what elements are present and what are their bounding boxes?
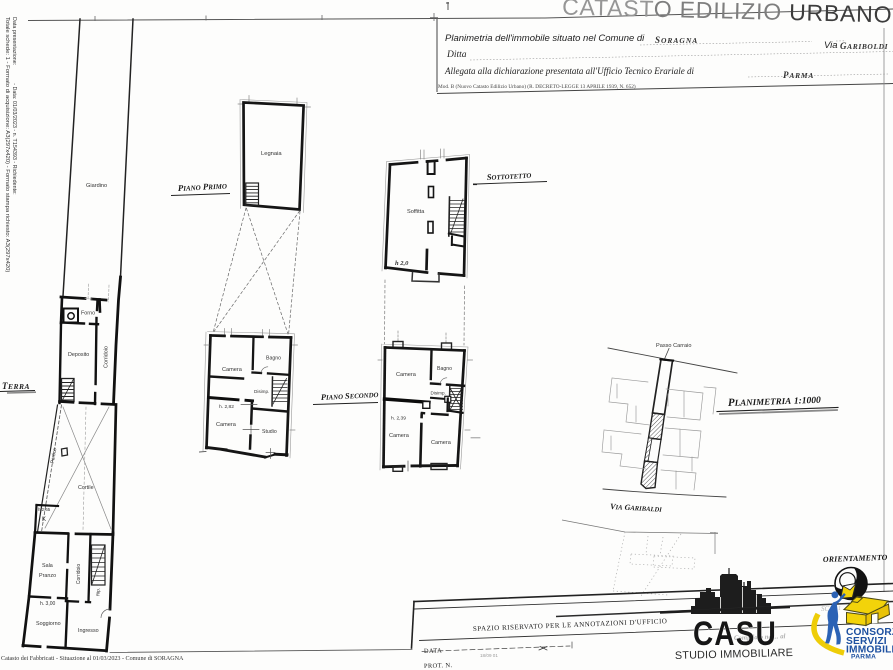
- svg-text:h. 3,00: h. 3,00: [40, 601, 56, 607]
- svg-text:Pranzo: Pranzo: [39, 573, 56, 579]
- svg-text:Mod. B (Nuovo Catasto Edilizio: Mod. B (Nuovo Catasto Edilizio Urbano) (…: [438, 83, 636, 90]
- svg-text:1: 1: [838, 606, 841, 612]
- svg-text:h 2,0: h 2,0: [395, 260, 409, 267]
- svg-text:Deposito: Deposito: [68, 352, 89, 358]
- svg-text:Catasto dei Fabbricati - Situa: Catasto dei Fabbricati - Situazione al 0…: [1, 656, 184, 662]
- svg-text:Totale schede: 1 - Formato di: Totale schede: 1 - Formato di acquisizio…: [4, 17, 10, 272]
- svg-text:Corridoio: Corridoio: [76, 564, 82, 585]
- svg-text:Rip.: Rip.: [96, 588, 101, 596]
- svg-text:Disimp.: Disimp.: [431, 391, 446, 396]
- svg-text:Passo Carraio: Passo Carraio: [656, 343, 691, 349]
- svg-text:Ingresso: Ingresso: [78, 628, 99, 634]
- svg-text:K: K: [42, 517, 46, 523]
- svg-text:Sala: Sala: [42, 563, 53, 569]
- svg-text:Camera: Camera: [389, 433, 410, 439]
- svg-text:Forno: Forno: [81, 311, 95, 317]
- svg-text:Camera: Camera: [216, 422, 237, 428]
- svg-text:TERRA: TERRA: [2, 381, 30, 391]
- svg-text:Corridoio: Corridoio: [104, 346, 110, 368]
- svg-text:Planimetria dell'immobile situ: Planimetria dell'immobile situato nel Co…: [445, 33, 645, 44]
- svg-text:Bagno: Bagno: [437, 366, 452, 372]
- svg-text:Ditta: Ditta: [446, 50, 467, 60]
- svg-text:Camera: Camera: [222, 367, 243, 373]
- svg-text:h.2,65: h.2,65: [38, 507, 51, 512]
- svg-text:h. 2,82: h. 2,82: [219, 404, 234, 410]
- svg-text:Via: Via: [824, 40, 838, 51]
- svg-text:Camera: Camera: [431, 440, 452, 446]
- svg-text:18/09 01: 18/09 01: [480, 653, 498, 658]
- svg-text:PARMA: PARMA: [851, 654, 876, 661]
- svg-text:SORAGNA: SORAGNA: [655, 35, 698, 45]
- svg-text:GARIBOLDI: GARIBOLDI: [840, 41, 889, 51]
- svg-text:Camera: Camera: [396, 372, 417, 378]
- svg-text:Studio: Studio: [262, 429, 277, 435]
- svg-text:Soggiorno: Soggiorno: [36, 621, 61, 627]
- svg-text:Giardino: Giardino: [86, 183, 107, 189]
- svg-text:Legnaia: Legnaia: [261, 151, 282, 157]
- svg-text:Bagno: Bagno: [266, 356, 281, 362]
- svg-text:Allegata alla dichiarazione pr: Allegata alla dichiarazione presentata a…: [444, 66, 694, 76]
- svg-text:Soffitta: Soffitta: [407, 209, 425, 215]
- svg-text:PARMA: PARMA: [783, 70, 814, 80]
- svg-text:PROT. N.: PROT. N.: [424, 662, 453, 670]
- svg-text:h. 2,39: h. 2,39: [391, 416, 406, 422]
- svg-text:Data presentazione:: Data presentazione: - Data: 01/03/2023 -…: [11, 17, 17, 195]
- svg-text:Cortile: Cortile: [78, 485, 94, 491]
- svg-text:Disimp.: Disimp.: [254, 389, 269, 394]
